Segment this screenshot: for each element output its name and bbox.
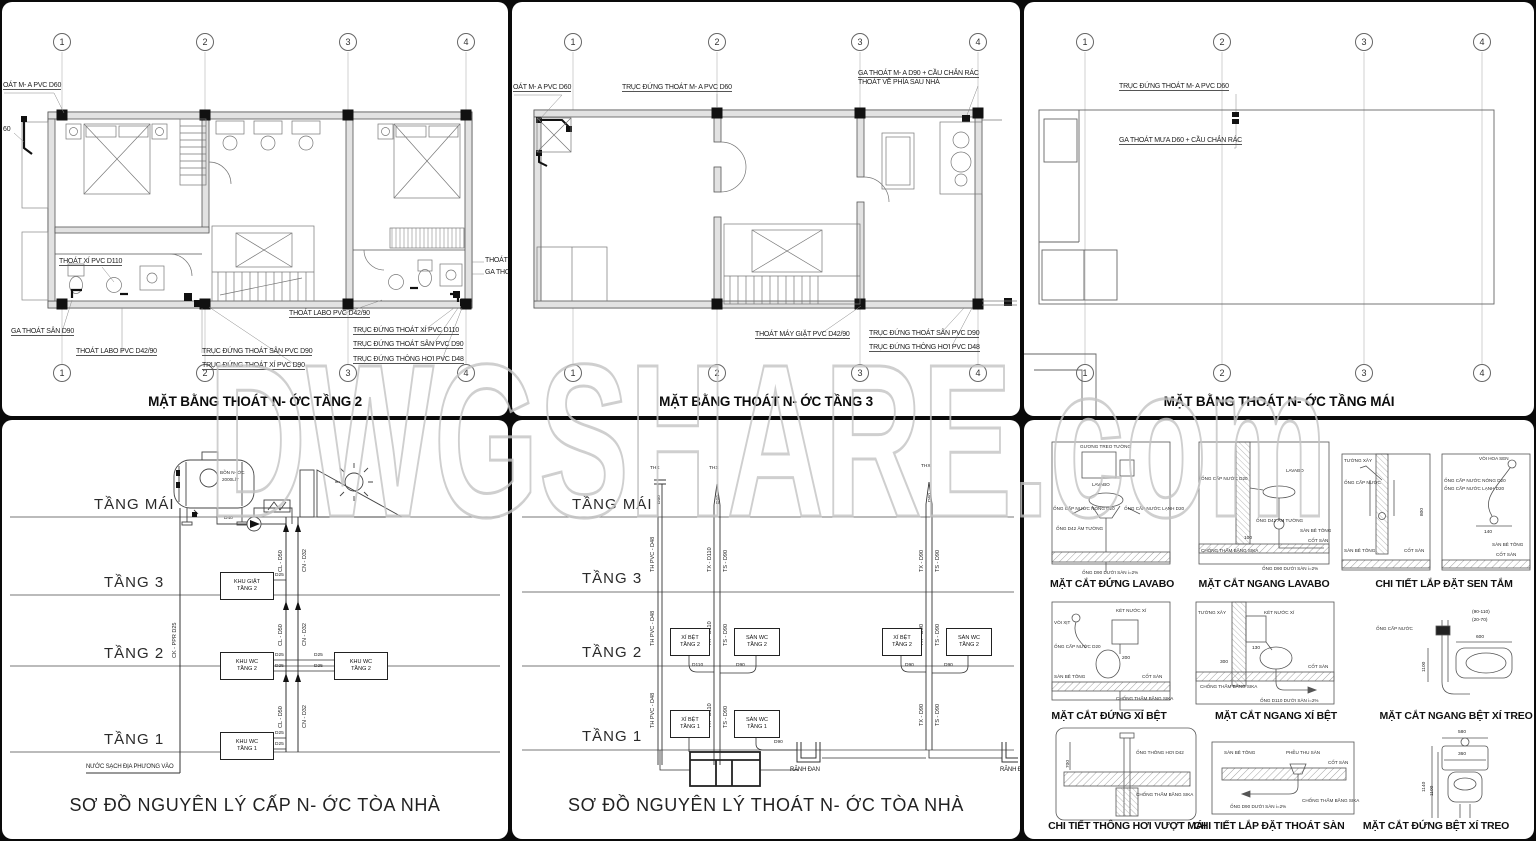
- dim-label: 800: [1420, 508, 1425, 516]
- box-label: KHU GIẶT TẦNG 2: [234, 579, 260, 593]
- grid-bubble-number: 1: [570, 368, 575, 378]
- grid-bubble-number: 1: [1082, 368, 1087, 378]
- plan-label: TRỤC ĐỨNG THOÁT XÍ PVC D90: [202, 362, 305, 370]
- detail-label: PHỄU THU SÀN: [1286, 750, 1320, 755]
- detail-label: CHỐNG THẤM BẰNG SIKA: [1136, 792, 1193, 797]
- detail-title: CHI TIẾT LẮP ĐẶT SEN TẮM: [1375, 578, 1512, 590]
- pipe-label: D25: [314, 653, 323, 658]
- supply-box: KHU WC TẦNG 2: [334, 652, 388, 680]
- riser-label: TS - D90: [935, 704, 941, 726]
- riser-label: CN - D32: [302, 705, 308, 728]
- plan-tangmai-drawing: 1 2 3 4 1 2 3 4: [1024, 2, 1534, 416]
- detail-label: ỐNG D90 DƯỚI SÀN i=2%: [1082, 570, 1138, 575]
- riser-label: TX - D90: [919, 704, 925, 726]
- supply-box: KHU WC TẦNG 1: [220, 732, 274, 760]
- detail-label: ỐNG CẤP NƯỚC LẠNH D20: [1444, 486, 1504, 491]
- plan-label: THOÁT LABO PVC D42/90: [289, 310, 370, 318]
- grid-bubble-number: 3: [1361, 368, 1366, 378]
- pipe-label: D25: [275, 664, 284, 669]
- pipe-label: D90: [944, 663, 953, 668]
- detail-label: ỐNG CẤP NƯỚC D20: [1054, 644, 1101, 649]
- detail-label: CHỐNG THẤM BẰNG SIKA: [1200, 684, 1257, 689]
- riser-label: TS - D90: [723, 550, 729, 572]
- plan-label: GA THO: [485, 269, 508, 276]
- box-label: SÀN WC TẦNG 1: [746, 717, 768, 731]
- grid-bubble-number: 2: [1219, 37, 1224, 47]
- plan-label: THOÁT X: [485, 257, 508, 264]
- pipe-label: D40: [224, 516, 233, 521]
- detail-label: ỐNG CẤP NƯỚC NÓNG D20: [1444, 478, 1506, 483]
- plan-label: GA THOÁT SÂN D90: [11, 328, 74, 336]
- grid-bubble-number: 2: [714, 37, 719, 47]
- box-label: SÀN WC TẦNG 2: [958, 635, 980, 649]
- dim-label: 300: [1220, 660, 1228, 665]
- grid-bubble-number: 2: [202, 37, 207, 47]
- plan-label: TRỤC ĐỨNG THOÁT SÂN PVC D90: [869, 330, 979, 338]
- vent-size-label: D60: [716, 495, 721, 504]
- detail-label: ỐNG THÔNG HƠI D42: [1136, 750, 1184, 755]
- pipe-label: D110: [692, 663, 703, 668]
- pipe-label: D25: [275, 742, 284, 747]
- plan-label: TRỤC ĐỨNG THÔNG HƠI PVC D48: [353, 356, 464, 364]
- supply-schematic-drawing: [2, 420, 508, 839]
- grid-bubble-number: 3: [857, 37, 862, 47]
- detail-label: ỐNG CẤP NƯỚC LẠNH D20: [1124, 506, 1184, 511]
- floor-label: TẦNG 2: [582, 644, 642, 661]
- riser-label: TH PVC - D48: [650, 537, 656, 572]
- panel-title: MẶT BẰNG THOÁT N- ỚC TẦNG 3: [512, 394, 1020, 409]
- riser-label: TX - D90: [919, 550, 925, 572]
- drain-box: SÀN WC TẦNG 1: [734, 710, 780, 738]
- dim-label: 100: [1244, 536, 1252, 541]
- detail-title: MẶT CẮT NGANG BỆT XÍ TREO: [1379, 710, 1532, 722]
- dim-label: 580: [1458, 730, 1466, 735]
- dim-label: 130: [1252, 646, 1260, 651]
- vent-size-label: D60: [657, 495, 662, 504]
- pipe-label: D25: [314, 664, 323, 669]
- detail-label: CỐT SÀN: [1308, 664, 1328, 669]
- vent-label: THX: [650, 466, 660, 471]
- grid-bubble-number: 3: [345, 368, 350, 378]
- dim-label: 140: [1484, 530, 1492, 535]
- riser-label: CN - D32: [302, 623, 308, 646]
- grid-bubble-number: 1: [59, 368, 64, 378]
- dim-label: (20-70): [1472, 618, 1487, 623]
- cad-sheet: 1 2 3 4 1 2 3 4: [0, 0, 1536, 841]
- riser-label: CK - PPR D25: [172, 623, 178, 658]
- detail-label: CỐT SÀN: [1142, 674, 1162, 679]
- detail-label: ỐNG D90 DƯỚI SÀN i=2%: [1262, 566, 1318, 571]
- panel-drainage-schematic: TẦNG MÁI TẦNG 3 TẦNG 2 TẦNG 1 THX THX TH…: [512, 420, 1020, 839]
- note-label: NƯỚC SẠCH ĐỊA PHƯƠNG VÀO: [86, 764, 173, 770]
- box-label: KHU WC TẦNG 1: [236, 739, 258, 753]
- grid-bubble-number: 2: [1219, 368, 1224, 378]
- grid-bubble-number: 2: [714, 368, 719, 378]
- detail-label: VÒI XỊT: [1054, 620, 1070, 625]
- detail-label: LAVABO: [1092, 482, 1110, 487]
- grid-bubble-number: 4: [1479, 37, 1484, 47]
- dim-label: 360: [1458, 752, 1466, 757]
- detail-title: MẶT CẮT ĐỨNG BỆT XÍ TREO: [1363, 820, 1509, 832]
- vent-label: THX: [709, 466, 719, 471]
- box-label: XÍ BỆT TẦNG 2: [680, 635, 700, 649]
- grid-bubble-number: 3: [857, 368, 862, 378]
- riser-label: CL - D50: [278, 624, 284, 646]
- detail-label: KÉT NƯỚC XÍ: [1116, 608, 1146, 613]
- detail-label: LAVABO: [1286, 468, 1304, 473]
- plan-label: 60: [3, 126, 10, 133]
- detail-label: GƯƠNG TREO TƯỜNG: [1080, 444, 1131, 449]
- supply-box: KHU WC TẦNG 2: [220, 652, 274, 680]
- plan-label: TRỤC ĐỨNG THOÁT SÂN PVC D90: [353, 341, 463, 349]
- box-label: XÍ BỆT TẦNG 1: [680, 717, 700, 731]
- floor-label: TẦNG 3: [104, 574, 164, 591]
- detail-title: MẶT CẮT NGANG LAVABO: [1199, 578, 1330, 590]
- panel-title: SƠ ĐỒ NGUYÊN LÝ CẤP N- ỚC TÒA NHÀ: [2, 795, 508, 816]
- detail-label: CHỐNG THẤM BẰNG SIKA: [1302, 798, 1359, 803]
- grid-bubble-number: 4: [463, 368, 468, 378]
- plan-label: THOÁT MÁY GIẶT PVC D42/90: [755, 331, 850, 339]
- floor-label: TẦNG 1: [104, 731, 164, 748]
- panel-plan-tang3: 1 2 3 4 1 2 3 4: [512, 2, 1020, 416]
- detail-label: ỐNG D90 DƯỚI SÀN i=2%: [1230, 804, 1286, 809]
- plan-label: TRỤC ĐỨNG THOÁT M- A PVC D60: [1119, 83, 1229, 91]
- riser-label: TS - D90: [723, 624, 729, 646]
- detail-title: MẶT CẮT NGANG XÍ BỆT: [1215, 710, 1337, 722]
- plan-label: TRỤC ĐỨNG THOÁT M- A PVC D60: [622, 84, 732, 92]
- pipe-label: D90: [736, 663, 745, 668]
- detail-label: ỐNG CẤP NƯỚC: [1376, 626, 1413, 631]
- riser-label: TS - D90: [935, 550, 941, 572]
- drain-box: SÀN WC TẦNG 2: [734, 628, 780, 656]
- tank-label: BỒN N- ỚC: [220, 470, 245, 475]
- dim-label: 1100: [1422, 662, 1427, 672]
- panel-title: MẶT BẰNG THOÁT N- ỚC TẦNG MÁI: [1024, 394, 1534, 409]
- supply-box: KHU GIẶT TẦNG 2: [220, 572, 274, 600]
- detail-label: SÀN BÊ TÔNG: [1344, 548, 1375, 553]
- grid-bubble-number: 4: [463, 37, 468, 47]
- detail-label: ỐNG D110 DƯỚI SÀN i=2%: [1260, 698, 1318, 703]
- plan-tang3-drawing: 1 2 3 4 1 2 3 4: [512, 2, 1020, 416]
- dim-label: 1100: [1430, 786, 1435, 796]
- riser-label: CN - D32: [302, 549, 308, 572]
- floor-label: TẦNG MÁI: [572, 496, 653, 513]
- pipe-label: D90: [774, 740, 783, 745]
- riser-label: TH PVC - D48: [650, 611, 656, 646]
- tank-label: 2000LÍT: [222, 477, 239, 482]
- plan-label: OÁT M- A PVC D60: [3, 82, 61, 90]
- detail-label: ỐNG CẤP NƯỚC NÓNG D20: [1053, 506, 1115, 511]
- pipe-label: D25: [275, 653, 284, 658]
- detail-label: VÒI HOA SEN: [1479, 456, 1509, 461]
- detail-title: CHI TIẾT LẮP ĐẶT THOÁT SÀN: [1194, 820, 1345, 832]
- dim-label: (90-110): [1472, 610, 1490, 615]
- riser-label: TS - D90: [935, 624, 941, 646]
- detail-label: CỐT SÀN: [1496, 552, 1516, 557]
- dim-label: 600: [1476, 635, 1484, 640]
- dim-label: 1140: [1422, 782, 1427, 792]
- gutter-label: RÃNH ĐAN: [1000, 767, 1020, 773]
- detail-title: CHI TIẾT THÔNG HƠI VƯỢT MÁI: [1048, 820, 1206, 832]
- panel-plan-tang2: 1 2 3 4 1 2 3 4: [2, 2, 508, 416]
- detail-title: MẶT CẮT ĐỨNG LAVABO: [1050, 578, 1174, 590]
- plan-label: THOÁT VỀ PHÍA SAU NHÀ: [858, 79, 940, 86]
- detail-label: KÉT NƯỚC XÍ: [1264, 610, 1294, 615]
- drain-box: XÍ BỆT TẦNG 2: [670, 628, 710, 656]
- plan-label: THOÁT LABO PVC D42/90: [76, 348, 157, 356]
- panel-title: SƠ ĐỒ NGUYÊN LÝ THOÁT N- ỚC TÒA NHÀ: [512, 795, 1020, 816]
- pipe-label: D90: [905, 663, 914, 668]
- grid-bubble-number: 4: [1479, 368, 1484, 378]
- grid-bubble-number: 4: [975, 37, 980, 47]
- detail-label: CỐT SÀN: [1328, 760, 1348, 765]
- detail-label: SÀN BÊ TÔNG: [1300, 528, 1331, 533]
- floor-label: TẦNG 1: [582, 728, 642, 745]
- riser-label: TH PVC - D48: [650, 693, 656, 728]
- panel-details: GƯƠNG TREO TƯỜNG LAVABO ỐNG CẤP NƯỚC NÓN…: [1024, 420, 1534, 839]
- plan-label: TRỤC ĐỨNG THOÁT XÍ PVC D110: [353, 327, 459, 335]
- drain-box: XÍ BỆT TẦNG 1: [670, 710, 710, 738]
- floor-label: TẦNG 2: [104, 645, 164, 662]
- detail-label: SÀN BÊ TÔNG: [1492, 542, 1523, 547]
- detail-label: CHỐNG THẤM BẰNG SIKA: [1201, 548, 1258, 553]
- plan-label: THOÁT XÍ PVC D110: [59, 258, 122, 266]
- panel-title: MẶT BẰNG THOÁT N- ỚC TẦNG 2: [2, 394, 508, 409]
- box-label: SÀN WC TẦNG 2: [746, 635, 768, 649]
- drain-box: XÍ BỆT TẦNG 2: [882, 628, 922, 656]
- box-label: KHU WC TẦNG 2: [350, 659, 372, 673]
- grid-bubble-number: 1: [1082, 37, 1087, 47]
- grid-bubble-number: 4: [975, 368, 980, 378]
- vent-size-label: D60: [928, 493, 933, 502]
- detail-label: ỐNG D42 ÂM TƯỜNG: [1056, 526, 1103, 531]
- box-label: KHU WC TẦNG 2: [236, 659, 258, 673]
- plan-label: TRỤC ĐỨNG THÔNG HƠI PVC D48: [869, 344, 980, 352]
- box-label: XÍ BỆT TẦNG 2: [892, 635, 912, 649]
- pipe-label: D25: [275, 731, 284, 736]
- floor-label: TẦNG MÁI: [94, 496, 175, 513]
- detail-label: TƯỜNG XÂY: [1344, 458, 1372, 463]
- panel-plan-tangmai: 1 2 3 4 1 2 3 4 TRỤC ĐỨNG THOÁT: [1024, 2, 1534, 416]
- panel-supply-schematic: TẦNG MÁI TẦNG 3 TẦNG 2 TẦNG 1 BỒN N- ỚC …: [2, 420, 508, 839]
- floor-label: TẦNG 3: [582, 570, 642, 587]
- detail-title: MẶT CẮT ĐỨNG XÍ BỆT: [1051, 710, 1166, 722]
- detail-label: ỐNG CẤP NƯỚC: [1344, 480, 1381, 485]
- riser-label: CL - D50: [278, 706, 284, 728]
- pipe-label: D25: [275, 573, 284, 578]
- detail-label: CỐT SÀN: [1308, 538, 1328, 543]
- plan-label: OÁT M- A PVC D60: [513, 84, 571, 92]
- dim-label: 700: [1066, 760, 1071, 768]
- riser-label: TX - D110: [707, 547, 713, 572]
- detail-label: ỐNG D42 ÂM TƯỜNG: [1256, 518, 1303, 523]
- vent-label: THX: [921, 464, 931, 469]
- drain-box: SÀN WC TẦNG 2: [946, 628, 992, 656]
- dim-label: 200: [1122, 656, 1130, 661]
- detail-label: CHỐNG THẤM BẰNG SIKA: [1116, 696, 1173, 701]
- riser-label: CL - D50: [278, 550, 284, 572]
- detail-label: SÀN BÊ TÔNG: [1224, 750, 1255, 755]
- detail-label: CỐT SÀN: [1404, 548, 1424, 553]
- grid-bubble-number: 3: [1361, 37, 1366, 47]
- riser-label: TS - D90: [723, 706, 729, 728]
- detail-label: TƯỜNG XÂY: [1198, 610, 1226, 615]
- grid-bubble-number: 1: [59, 37, 64, 47]
- gutter-label: RÃNH ĐAN: [790, 767, 820, 773]
- grid-bubble-number: 3: [345, 37, 350, 47]
- plan-label: TRỤC ĐỨNG THOÁT SÂN PVC D90: [202, 348, 312, 356]
- detail-label: ỐNG CẤP NƯỚC D20: [1201, 476, 1248, 481]
- plan-label: GA THOÁT M- A D90 + CẦU CHẮN RÁC: [858, 70, 979, 78]
- grid-bubble-number: 1: [570, 37, 575, 47]
- plan-label: GA THOÁT MƯA D60 + CẦU CHẮN RÁC: [1119, 137, 1242, 145]
- detail-label: SÀN BÊ TÔNG: [1054, 674, 1085, 679]
